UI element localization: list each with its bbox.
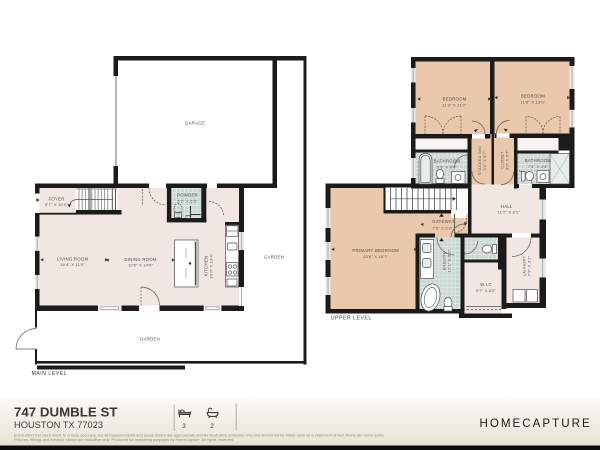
svg-text:3'0" X 6'7": 3'0" X 6'7" [505, 149, 510, 170]
svg-text:Fixtures, fittings and furnitu: Fixtures, fittings and furniture shown a… [14, 438, 234, 442]
svg-text:DINING ROOM: DINING ROOM [124, 257, 157, 262]
svg-text:POWDER: POWDER [177, 193, 198, 198]
svg-text:BATHROOM: BATHROOM [525, 158, 552, 163]
svg-text:2: 2 [210, 423, 214, 430]
svg-text:5'7" X 10'0": 5'7" X 10'0" [45, 202, 68, 207]
svg-text:LIVING ROOM: LIVING ROOM [57, 257, 89, 262]
svg-text:10'5" X 14'8": 10'5" X 14'8" [128, 262, 154, 267]
svg-text:FOYER: FOYER [48, 197, 64, 202]
svg-text:7'9" X 3'1": 7'9" X 3'1" [527, 255, 532, 276]
svg-text:PRIMARY BEDROOM: PRIMARY BEDROOM [352, 248, 399, 253]
svg-text:BATHROOM: BATHROOM [434, 159, 461, 164]
svg-text:7'5" X 2'9": 7'5" X 2'9" [432, 226, 453, 231]
svg-text:6'7" X 8'2": 6'7" X 8'2" [476, 288, 497, 293]
svg-text:MAIN LEVEL: MAIN LEVEL [32, 371, 68, 377]
svg-text:19'4" X 11'0": 19'4" X 11'0" [60, 262, 85, 267]
svg-text:11'3" X 11'2": 11'3" X 11'2" [442, 102, 467, 107]
svg-text:3: 3 [182, 423, 186, 430]
svg-text:Every effort has been made to: Every effort has been made to ensure acc… [14, 433, 385, 437]
svg-text:GARDEN: GARDEN [140, 337, 160, 342]
svg-text:12'1" X 5'2": 12'1" X 5'2" [447, 249, 452, 272]
svg-text:5'5" X 8'0": 5'5" X 8'0" [437, 165, 458, 170]
svg-text:5'2" X 6'5": 5'2" X 6'5" [177, 199, 198, 204]
svg-text:BEDROOM: BEDROOM [443, 97, 467, 102]
svg-text:11'2" X 8'1": 11'2" X 8'1" [497, 210, 520, 215]
svg-text:747 DUMBLE ST: 747 DUMBLE ST [14, 405, 117, 420]
svg-text:HALL: HALL [501, 204, 513, 209]
svg-text:GATEWAY: GATEWAY [432, 219, 454, 224]
svg-text:HOUSTON TX 77023: HOUSTON TX 77023 [14, 420, 103, 430]
svg-text:W.I.C: W.I.C [480, 282, 492, 287]
svg-text:GARDEN: GARDEN [264, 255, 284, 260]
svg-text:13'6" X 16'7": 13'6" X 16'7" [363, 254, 389, 259]
svg-text:BEDROOM: BEDROOM [521, 94, 545, 99]
svg-text:11'8" X 13'0": 11'8" X 13'0" [521, 100, 546, 105]
svg-text:10'0" X 13'4": 10'0" X 13'4" [208, 253, 213, 279]
svg-text:HOMECAPTURE: HOMECAPTURE [480, 417, 592, 430]
svg-text:UPPER LEVEL: UPPER LEVEL [331, 316, 372, 322]
svg-text:GARAGE: GARAGE [185, 121, 205, 126]
svg-text:7'4" X 4'9": 7'4" X 4'9" [528, 164, 549, 169]
svg-text:3'1" X 6'7": 3'1" X 6'7" [482, 150, 487, 171]
